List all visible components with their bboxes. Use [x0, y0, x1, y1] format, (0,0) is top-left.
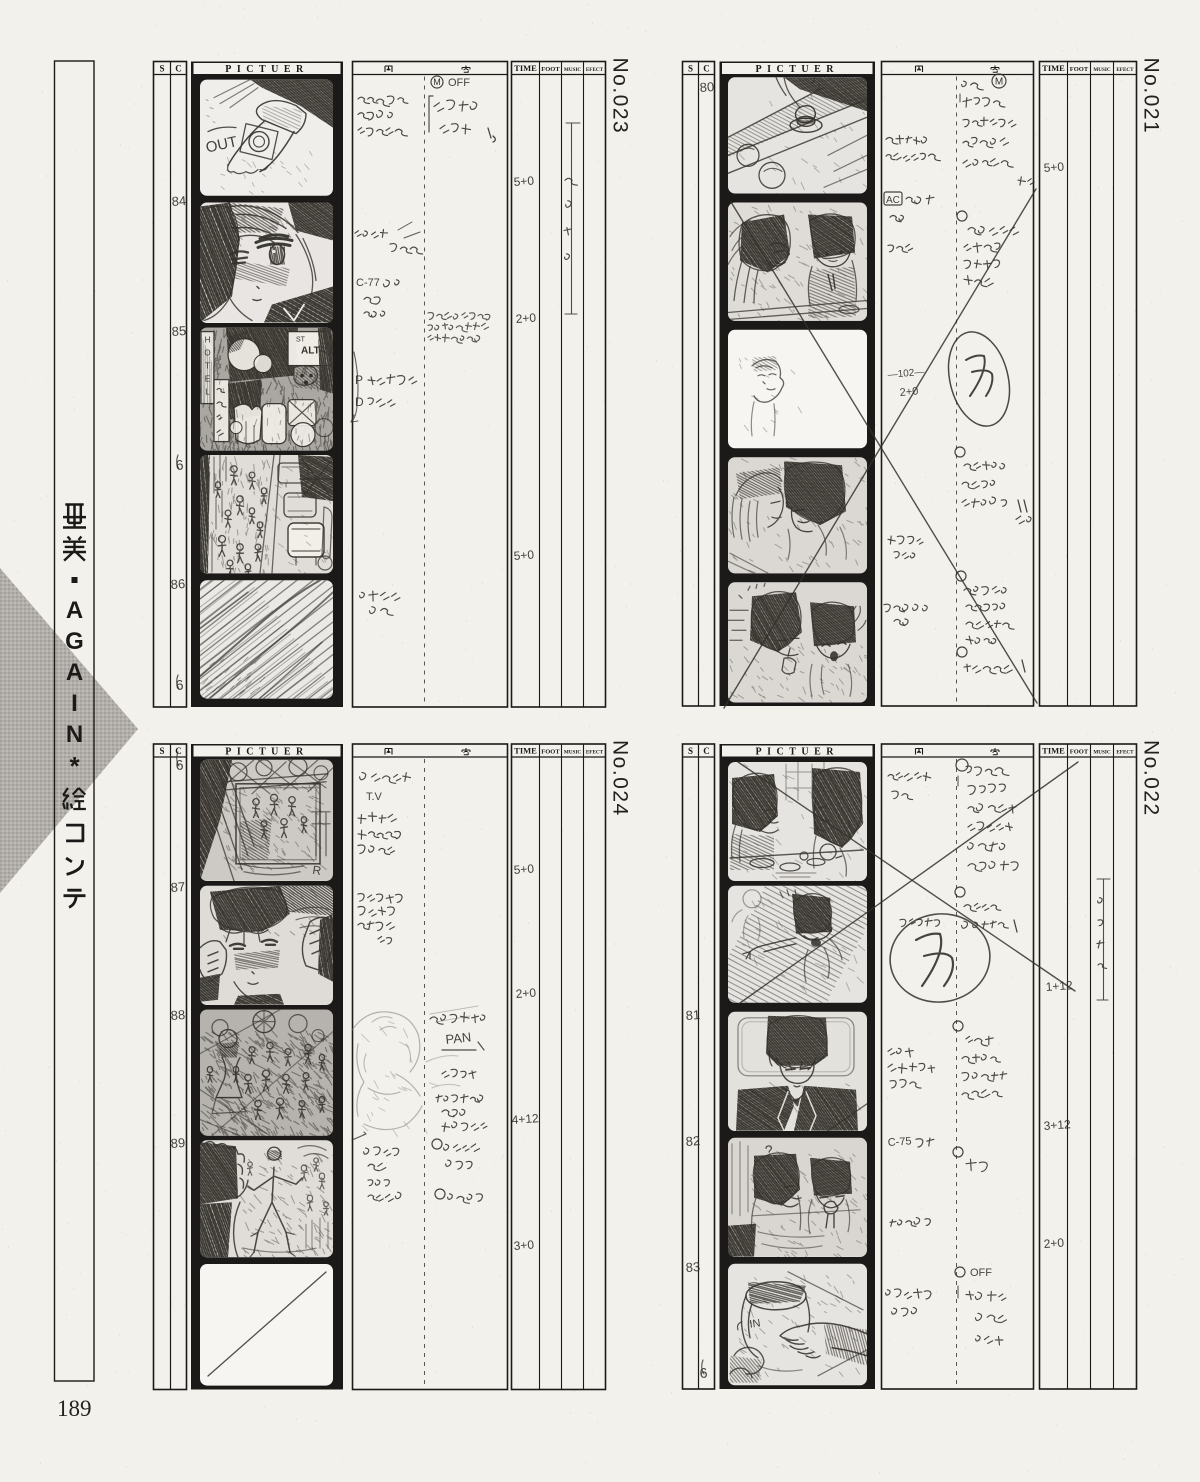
svg-text:5+0: 5+0 [1043, 160, 1065, 175]
svg-text:OFF: OFF [970, 1267, 992, 1279]
svg-text:TIME: TIME [1042, 746, 1065, 756]
svg-text:2+0: 2+0 [1043, 1236, 1065, 1251]
svg-text:4+12: 4+12 [511, 1111, 539, 1127]
svg-text:MUSIC: MUSIC [1093, 67, 1111, 73]
svg-text:EFECT: EFECT [586, 67, 604, 73]
svg-text:2+0: 2+0 [515, 986, 537, 1001]
svg-text:80: 80 [699, 79, 714, 95]
svg-text:81: 81 [685, 1007, 700, 1023]
svg-text:I: I [71, 690, 78, 717]
svg-text:FOOT: FOOT [1070, 66, 1089, 73]
svg-text:TIME: TIME [514, 63, 537, 73]
svg-text:82: 82 [685, 1133, 700, 1149]
svg-text:M: M [995, 77, 1003, 88]
svg-text:PICTUER: PICTUER [225, 64, 309, 75]
svg-text:FOOT: FOOT [1070, 749, 1089, 756]
svg-text:85: 85 [171, 323, 186, 339]
svg-text:PICTUER: PICTUER [755, 747, 839, 758]
svg-text:1+12: 1+12 [1045, 978, 1073, 994]
svg-text:89: 89 [170, 1135, 185, 1151]
svg-text:P: P [355, 373, 363, 387]
svg-text:No.021: No.021 [1140, 58, 1163, 135]
svg-text:5+0: 5+0 [513, 548, 535, 563]
svg-text:PICTUER: PICTUER [755, 64, 839, 75]
svg-text:—102—: —102— [887, 367, 925, 381]
svg-text:AC: AC [886, 195, 900, 206]
svg-text:C: C [703, 746, 710, 756]
svg-text:G: G [65, 628, 84, 655]
svg-text:EFECT: EFECT [1116, 67, 1134, 73]
svg-text:No.024: No.024 [609, 740, 632, 817]
svg-text:5+0: 5+0 [513, 174, 535, 189]
svg-text:PAN: PAN [445, 1029, 472, 1047]
svg-text:MUSIC: MUSIC [564, 67, 582, 73]
svg-text:OFF: OFF [448, 77, 470, 89]
svg-text:189: 189 [57, 1396, 92, 1421]
svg-text:EFECT: EFECT [586, 750, 604, 756]
svg-text:C-75: C-75 [887, 1135, 912, 1149]
svg-text:84: 84 [171, 193, 186, 209]
svg-text:FOOT: FOOT [541, 66, 560, 73]
svg-text:A: A [66, 659, 83, 686]
svg-text:5+0: 5+0 [513, 862, 535, 877]
svg-text:C-77: C-77 [356, 277, 380, 289]
svg-text:87: 87 [170, 879, 185, 895]
svg-text:86: 86 [170, 576, 185, 592]
svg-text:No.022: No.022 [1140, 740, 1163, 817]
svg-text:FOOT: FOOT [541, 749, 560, 756]
svg-text:C: C [175, 64, 182, 74]
svg-text:TIME: TIME [514, 746, 537, 756]
svg-text:C: C [175, 746, 182, 756]
svg-text:MUSIC: MUSIC [564, 750, 582, 756]
svg-text:S: S [159, 746, 164, 756]
svg-text:EFECT: EFECT [1116, 750, 1134, 756]
svg-text:N: N [66, 721, 83, 748]
svg-text:No.023: No.023 [609, 58, 632, 135]
svg-text:2+0: 2+0 [515, 311, 537, 326]
svg-text:A: A [66, 597, 83, 624]
svg-text:S: S [688, 746, 693, 756]
svg-text:3+0: 3+0 [513, 1238, 535, 1253]
svg-text:ST: ST [296, 337, 306, 344]
svg-text:3+12: 3+12 [1043, 1117, 1071, 1133]
svg-text:PICTUER: PICTUER [225, 747, 309, 758]
svg-text:88: 88 [170, 1007, 185, 1023]
svg-text:C: C [703, 64, 710, 74]
svg-text:S: S [688, 64, 693, 74]
svg-text:83: 83 [685, 1259, 700, 1275]
svg-text:S: S [159, 64, 164, 74]
svg-text:M: M [433, 77, 441, 87]
svg-text:*: * [69, 751, 80, 781]
svg-text:TIME: TIME [1042, 63, 1065, 73]
svg-text:H: H [205, 336, 211, 345]
svg-text:D: D [355, 395, 364, 409]
svg-text:MUSIC: MUSIC [1093, 750, 1111, 756]
svg-text:T.V: T.V [366, 791, 383, 803]
svg-text:2+0: 2+0 [899, 385, 919, 399]
